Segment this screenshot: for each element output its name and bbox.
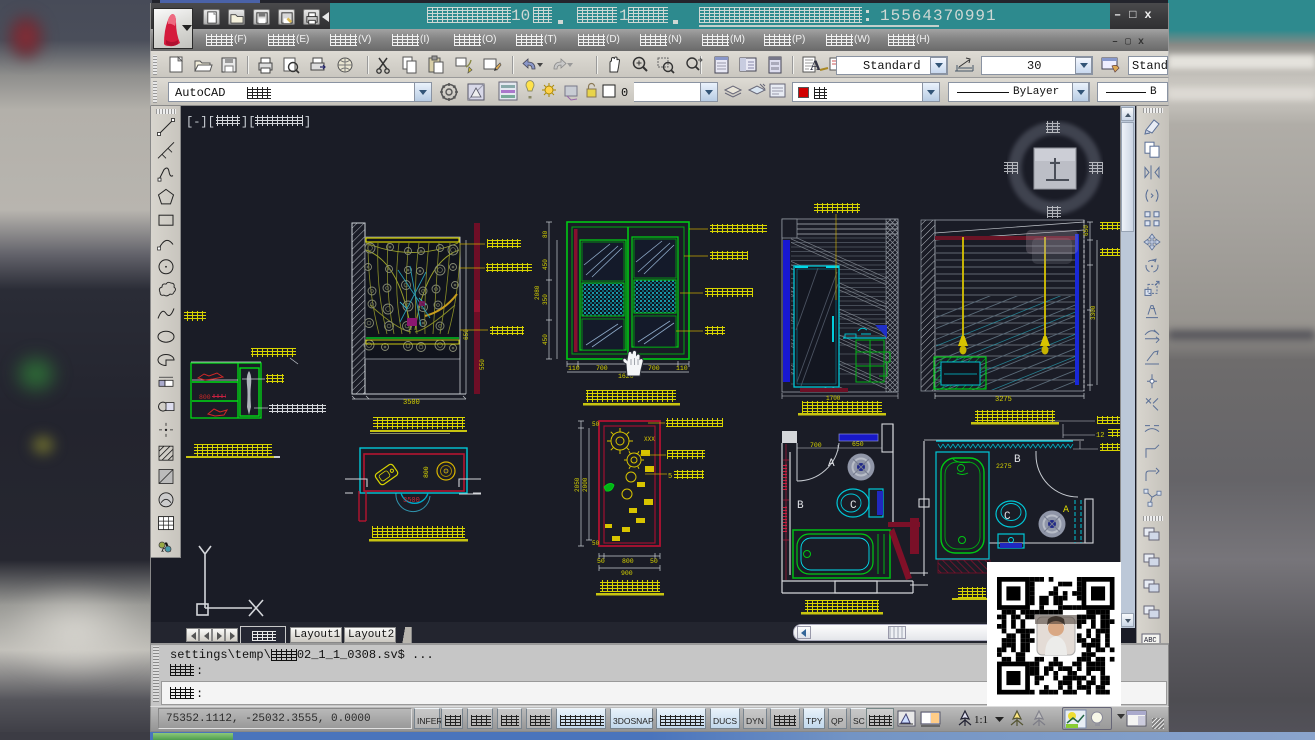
svg-text:2080: 2080	[534, 285, 541, 300]
svg-text:2050: 2050	[574, 477, 581, 492]
svg-text:350: 350	[542, 294, 549, 305]
svg-text:][: ][	[241, 115, 255, 129]
svg-text:B: B	[1014, 454, 1021, 466]
svg-text:50: 50	[650, 558, 658, 565]
svg-text:1700: 1700	[826, 395, 841, 402]
svg-text:A: A	[1063, 505, 1069, 516]
svg-text:110: 110	[676, 365, 688, 372]
svg-text:C: C	[1004, 511, 1011, 523]
svg-text:700: 700	[810, 442, 822, 449]
svg-text:12: 12	[1096, 432, 1104, 440]
svg-text:900: 900	[621, 570, 633, 577]
svg-text:C: C	[850, 500, 857, 512]
svg-text:80: 80	[542, 230, 549, 238]
svg-text:2000: 2000	[582, 477, 589, 492]
svg-text:1:1: 1:1	[974, 714, 988, 726]
svg-text:800: 800	[423, 466, 430, 478]
svg-text:700: 700	[596, 365, 608, 372]
svg-text:]: ]	[304, 115, 311, 129]
svg-text:A: A	[828, 458, 835, 470]
svg-text:50: 50	[592, 540, 600, 547]
svg-text:XXX: XXX	[644, 436, 655, 443]
svg-text:650: 650	[463, 329, 470, 340]
svg-text:A: A	[810, 58, 821, 74]
svg-text:50: 50	[597, 558, 605, 565]
svg-text:0: 0	[621, 86, 628, 100]
svg-text:650: 650	[852, 441, 864, 448]
svg-text:650: 650	[1083, 225, 1090, 236]
svg-text:3500: 3500	[403, 399, 420, 407]
svg-text:800: 800	[199, 394, 211, 401]
svg-text:550: 550	[479, 359, 486, 370]
svg-text:50: 50	[592, 421, 600, 428]
svg-text:3300: 3300	[1090, 305, 1097, 320]
svg-text:450: 450	[542, 334, 549, 345]
svg-text:B: B	[797, 500, 804, 512]
svg-text:3275: 3275	[995, 396, 1012, 404]
svg-text:[-][: [-][	[186, 115, 215, 129]
svg-text:700: 700	[648, 365, 660, 372]
svg-text:800: 800	[622, 558, 634, 565]
svg-text:3500: 3500	[403, 497, 420, 505]
svg-text:450: 450	[542, 259, 549, 270]
svg-text:5: 5	[668, 473, 672, 481]
svg-text:110: 110	[568, 365, 580, 372]
svg-text:2275: 2275	[996, 463, 1012, 470]
